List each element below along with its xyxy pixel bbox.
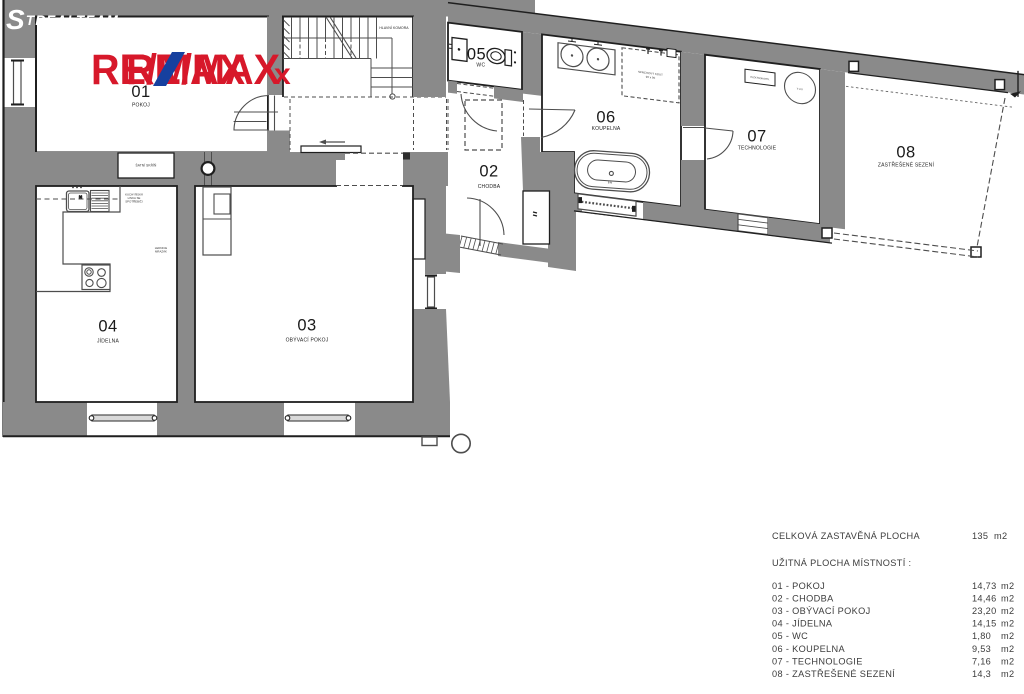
svg-text:WC: WC — [476, 63, 485, 69]
svg-text:CELKOVÁ ZASTAVĚNÁ PLOCHA: CELKOVÁ ZASTAVĚNÁ PLOCHA — [772, 531, 920, 541]
svg-text:06: 06 — [596, 109, 615, 127]
svg-text:02: 02 — [479, 163, 498, 181]
svg-text:MRAZÁK: MRAZÁK — [155, 250, 167, 254]
svg-text:9,53: 9,53 — [972, 644, 991, 654]
svg-text:7,16: 7,16 — [972, 656, 991, 666]
svg-text:BM: BM — [608, 180, 613, 184]
svg-text:m2: m2 — [1001, 619, 1014, 629]
svg-text:02 - CHODBA: 02 - CHODBA — [772, 594, 834, 604]
svg-text:x: x — [274, 58, 291, 91]
svg-text:07 - TECHNOLOGIE: 07 - TECHNOLOGIE — [772, 656, 863, 666]
svg-text:HLAVNÍ KOMORA: HLAVNÍ KOMORA — [379, 26, 409, 30]
svg-text:m2: m2 — [1001, 631, 1014, 641]
svg-text:03 - OBÝVACÍ POKOJ: 03 - OBÝVACÍ POKOJ — [772, 606, 871, 616]
svg-text:KOUPELNA: KOUPELNA — [592, 126, 621, 132]
svg-text:m2: m2 — [994, 531, 1007, 541]
svg-text:08 - ZASTŘEŠENÉ SEZENÍ: 08 - ZASTŘEŠENÉ SEZENÍ — [772, 669, 895, 679]
svg-text:m2: m2 — [1001, 594, 1014, 604]
svg-text:14,46: 14,46 — [972, 594, 997, 604]
svg-text:CHODBA: CHODBA — [478, 184, 501, 190]
svg-text:05 - WC: 05 - WC — [772, 631, 808, 641]
svg-text:14,73: 14,73 — [972, 581, 997, 591]
svg-text:m2: m2 — [1001, 581, 1014, 591]
svg-text:01: 01 — [131, 83, 150, 101]
svg-text:01 - POKOJ: 01 - POKOJ — [772, 581, 825, 591]
svg-text:06 - KOUPELNA: 06 - KOUPELNA — [772, 644, 845, 654]
svg-text:14,15: 14,15 — [972, 619, 997, 629]
svg-text:135: 135 — [972, 531, 988, 541]
svg-text:SPOTŘEBIČI: SPOTŘEBIČI — [125, 199, 143, 204]
svg-text:1,80: 1,80 — [972, 631, 991, 641]
svg-text:m2: m2 — [1001, 669, 1014, 679]
svg-text:ZASTŘEŠENÉ SEZENÍ: ZASTŘEŠENÉ SEZENÍ — [878, 161, 935, 169]
svg-text:UŽITNÁ PLOCHA MÍSTNOSTÍ :: UŽITNÁ PLOCHA MÍSTNOSTÍ : — [772, 558, 911, 568]
svg-text:05: 05 — [467, 46, 486, 64]
svg-text:POKOJ: POKOJ — [132, 103, 150, 109]
svg-text:08: 08 — [896, 144, 915, 162]
svg-text:TUV: TUV — [797, 87, 804, 92]
svg-text:JÍDELNA: JÍDELNA — [97, 338, 119, 345]
svg-text:23,20: 23,20 — [972, 606, 997, 616]
svg-text:14,3: 14,3 — [972, 669, 991, 679]
svg-text:OBÝVACÍ POKOJ: OBÝVACÍ POKOJ — [286, 337, 329, 344]
svg-text:03: 03 — [297, 317, 316, 335]
svg-text:m2: m2 — [1001, 656, 1014, 666]
svg-text:04: 04 — [98, 318, 117, 336]
svg-text:m2: m2 — [1001, 606, 1014, 616]
svg-text:04 - JÍDELNA: 04 - JÍDELNA — [772, 619, 833, 629]
svg-text:ŠATNÍ SKŘÍŇ: ŠATNÍ SKŘÍŇ — [136, 163, 157, 168]
svg-text:m2: m2 — [1001, 644, 1014, 654]
svg-text:TECHNOLOGIE: TECHNOLOGIE — [738, 146, 777, 152]
svg-text:07: 07 — [747, 128, 766, 146]
